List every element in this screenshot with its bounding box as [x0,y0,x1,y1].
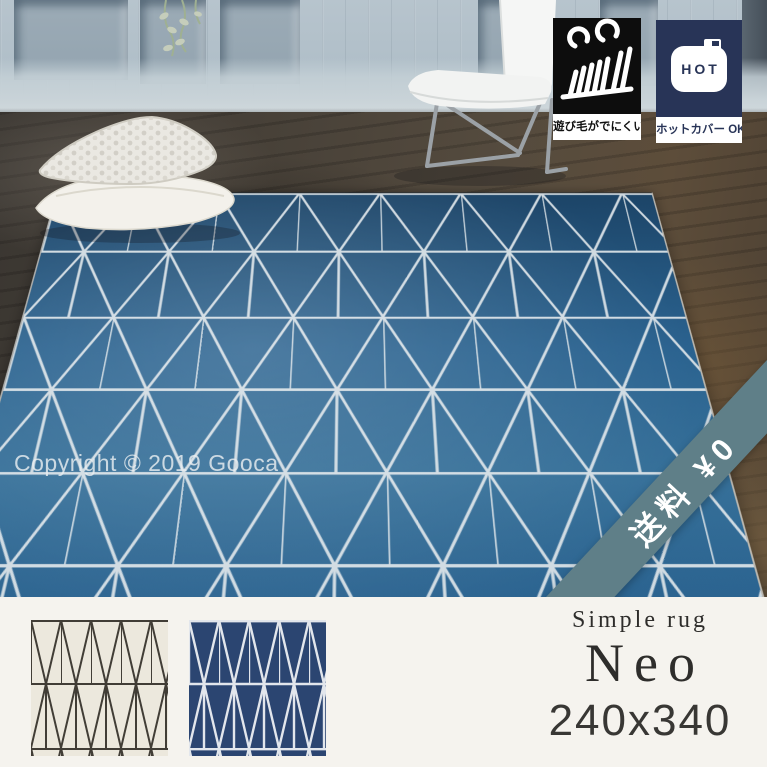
product-name: Neo [500,636,767,690]
hot-icon-text: HOT [678,61,720,77]
hot-carpet-ok-badge: HOT ホットカバー OK! [656,20,742,143]
product-title-block: Simple rug Neo 240x340 [500,597,767,767]
color-swatch-navy [189,620,326,756]
rug-product-banner: Copyright © 2019 Gooca [0,0,767,767]
hot-badge-label: ホットカバー OK! [656,117,742,143]
carpet-pile-lint-icon [553,18,641,114]
white-lounge-chair [380,0,580,200]
pillows-illustration [0,0,270,250]
color-swatch-ivory [31,620,168,756]
product-series-label: Simple rug [500,607,767,634]
product-info-strip: Simple rug Neo 240x340 [0,597,767,767]
hot-carpet-cover-icon: HOT [671,46,727,92]
product-size: 240x340 [500,696,767,746]
lint-resistant-badge: 遊び毛がでにくい [553,18,641,140]
lint-badge-label: 遊び毛がでにくい [553,114,641,140]
copyright-watermark: Copyright © 2019 Gooca [14,450,278,477]
room-photo: Copyright © 2019 Gooca [0,0,767,597]
